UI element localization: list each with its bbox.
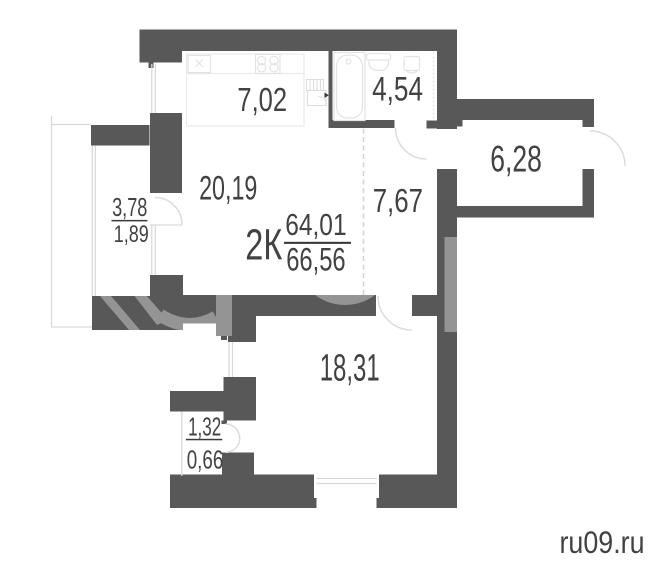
- svg-text:66,56: 66,56: [286, 242, 345, 278]
- svg-text:0,66: 0,66: [187, 447, 224, 475]
- svg-text:7,02: 7,02: [237, 81, 287, 118]
- svg-text:1,89: 1,89: [114, 221, 149, 248]
- svg-text:1,32: 1,32: [188, 414, 221, 442]
- svg-text:3,78: 3,78: [112, 194, 147, 222]
- svg-text:4,54: 4,54: [372, 70, 423, 108]
- svg-text:7,67: 7,67: [373, 182, 423, 219]
- svg-text:2К: 2К: [245, 220, 282, 269]
- svg-text:64,01: 64,01: [285, 207, 346, 242]
- svg-text:6,28: 6,28: [490, 139, 542, 180]
- svg-text:18,31: 18,31: [320, 348, 380, 390]
- svg-text:20,19: 20,19: [199, 169, 257, 207]
- svg-text:ru09.ru: ru09.ru: [560, 524, 645, 560]
